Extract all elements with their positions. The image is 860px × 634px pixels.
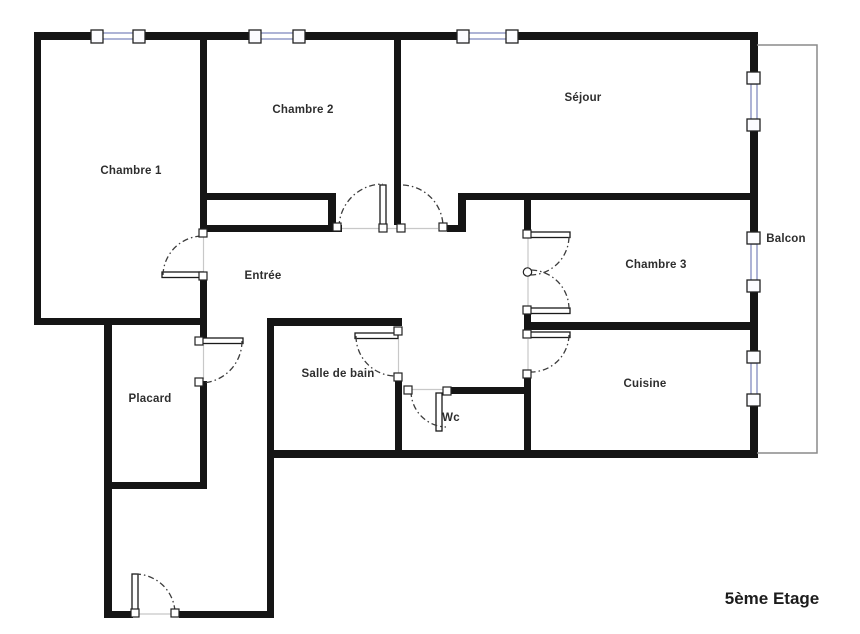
window-top-3 [457,30,518,43]
room-label-balcon: Balcon [766,233,806,245]
room-label-salle-de-bain: Salle de bain [302,368,375,380]
door-cuisine [529,332,570,372]
room-label-entree: Entrée [245,270,282,282]
door-pivot-point [523,268,531,276]
walls [34,32,758,618]
doorway-threshold-lines [139,229,528,615]
door-posts [131,223,531,617]
room-label-chambre2: Chambre 2 [272,104,333,116]
room-label-cuisine: Cuisine [624,378,667,390]
balcony-outline [757,45,817,453]
floor-title: 5ème Etage [725,589,820,608]
window-right-sejour [747,72,760,131]
room-label-chambre1: Chambre 1 [100,165,162,177]
door-wc [411,391,446,431]
door-placard [200,338,243,383]
door-chambre1 [162,236,203,278]
floor-plan-canvas: Chambre 1 Chambre 2 Séjour Balcon Chambr… [0,0,860,634]
window-top-1 [91,30,145,43]
double-door-chambre3 [523,232,570,314]
double-door-entree [339,184,443,228]
floor-plan-page: Chambre 1 Chambre 2 Séjour Balcon Chambr… [0,0,860,634]
window-top-2 [249,30,305,43]
room-label-wc: Wc [442,412,460,424]
window-right-chambre3 [747,232,760,292]
room-label-chambre3: Chambre 3 [625,259,686,271]
front-door [132,574,175,613]
room-label-placard: Placard [129,393,172,405]
room-label-sejour: Séjour [565,92,602,104]
window-right-cuisine [747,351,760,406]
